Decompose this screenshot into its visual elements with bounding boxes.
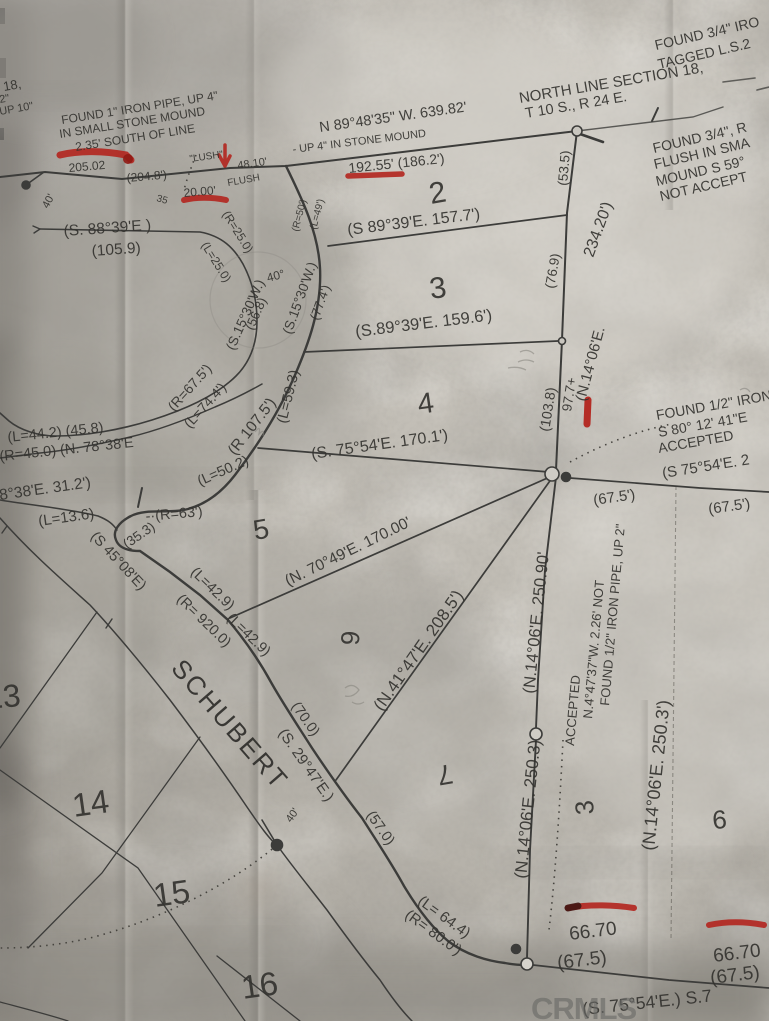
svg-text:15: 15 <box>151 872 193 914</box>
svg-text:CRMLS: CRMLS <box>531 991 637 1021</box>
svg-text:6: 6 <box>335 629 366 646</box>
svg-text:3: 3 <box>569 799 600 816</box>
svg-text:20.00': 20.00' <box>183 183 216 200</box>
svg-text:18,: 18, <box>2 76 22 94</box>
svg-text:9: 9 <box>711 804 728 835</box>
svg-text:16: 16 <box>239 964 281 1006</box>
svg-text:13: 13 <box>0 677 22 716</box>
svg-text:14: 14 <box>70 782 112 824</box>
svg-text:(53.5): (53.5) <box>555 150 573 186</box>
svg-text:(105.9): (105.9) <box>91 240 141 260</box>
